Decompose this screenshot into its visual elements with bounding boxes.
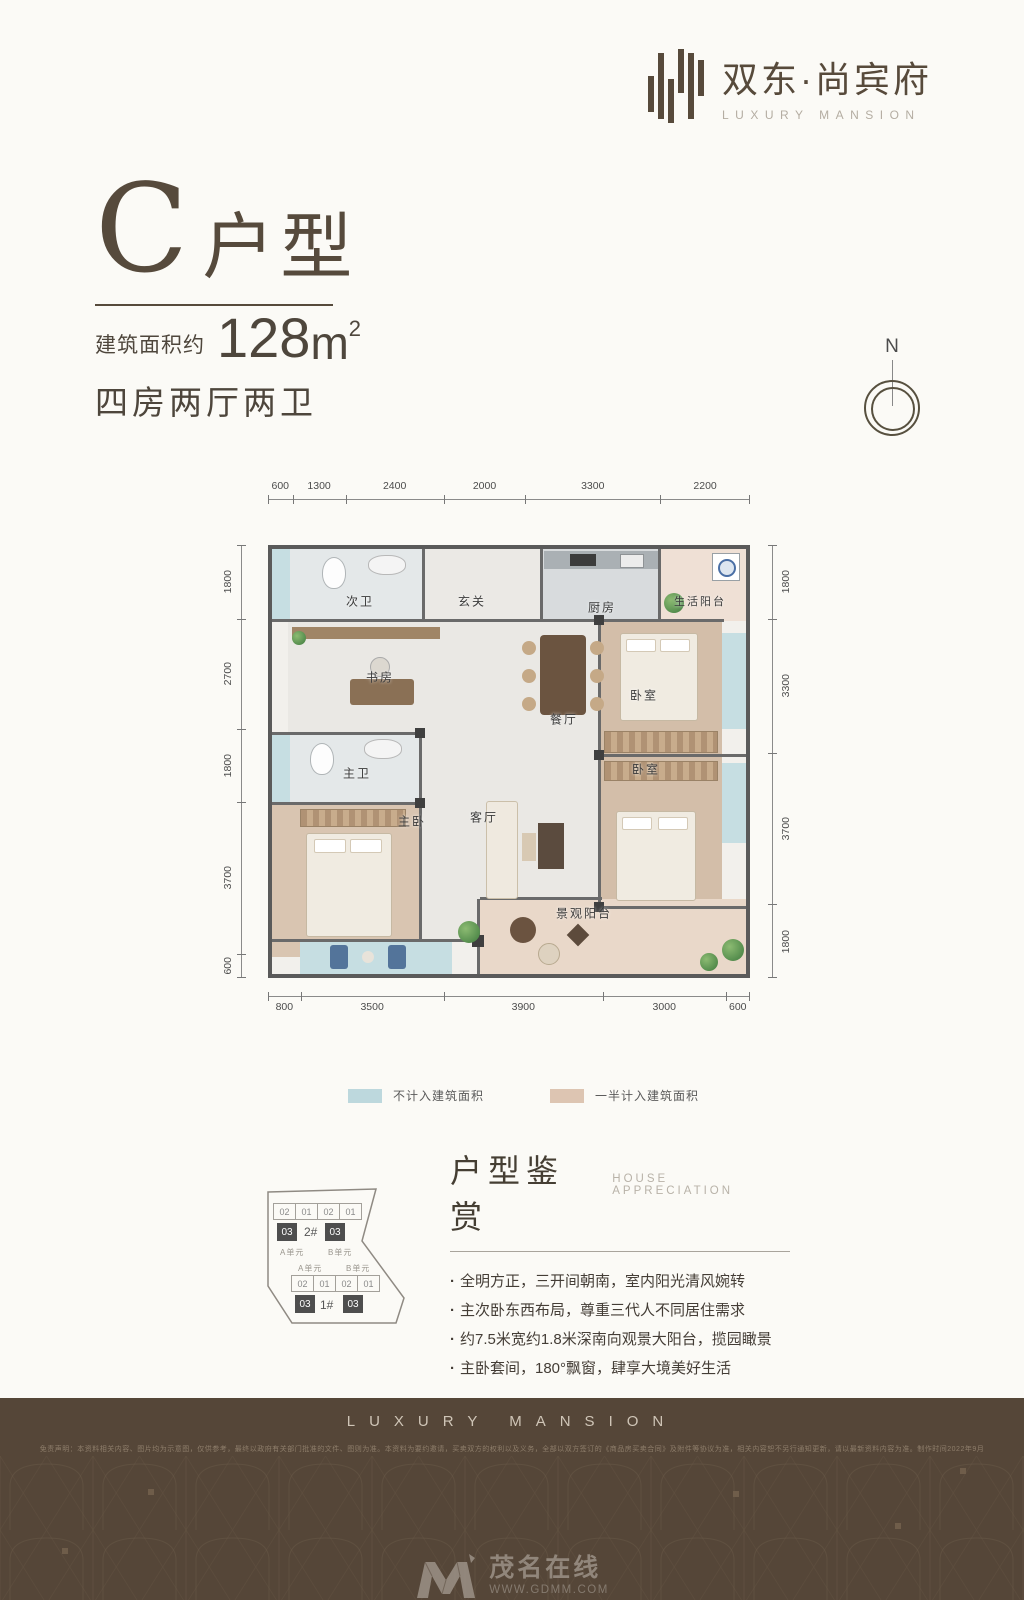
room-label: 卧室 [632, 761, 660, 778]
site-plan-diagram: 02 01 02 01 03 03 2# A单元 B单元 A单元 B单元 02 … [252, 1163, 437, 1335]
building-2: 02 01 02 01 03 03 2# A单元 B单元 [274, 1203, 394, 1263]
room-label: 玄关 [458, 593, 486, 610]
unit-title-block: C 户型 建筑面积约 128 m 2 四房两厅两卫 [95, 168, 361, 424]
plant-icon [700, 953, 718, 971]
watermark-name: 茂名在线 [489, 1556, 609, 1581]
furniture-wardrobe [604, 761, 718, 781]
dim-segment: 1800 [772, 904, 792, 978]
rooms-label: 四房两厅两卫 [95, 376, 361, 424]
watermark: 茂名在线 WWW.GDMM.COM [0, 1552, 1024, 1600]
unit-a-label: A单元 [280, 1247, 304, 1258]
unit-cell: 02 [273, 1203, 296, 1220]
room-label: 书房 [366, 669, 394, 686]
furniture-lounger [388, 945, 406, 969]
bullet-item: 主次卧东西布局，尊重三代人不同居住需求 [450, 1296, 790, 1325]
room-label: 餐厅 [550, 711, 578, 728]
area-label: 建筑面积约 [95, 329, 205, 366]
dim-segment: 600 [222, 954, 242, 979]
building-1: A单元 B单元 02 01 02 01 03 03 1# [292, 1263, 412, 1323]
room-label: 景观阳台 [556, 905, 612, 922]
furniture-shelf [292, 627, 440, 639]
unit-a-label: A单元 [298, 1263, 322, 1274]
room-label: 客厅 [470, 809, 498, 826]
plant-icon [292, 631, 306, 645]
dim-segment: 3700 [222, 802, 242, 953]
house-appreciation-section: 户型鉴赏 HOUSE APPRECIATION 全明方正，三开间朝南，室内阳光清… [450, 1146, 790, 1383]
stove-icon [570, 554, 596, 566]
appreciation-title-cn: 户型鉴赏 [450, 1146, 598, 1238]
balcony-bay-zone [300, 941, 452, 974]
washer-drum-icon [718, 559, 736, 577]
legend-item: 不计入建筑面积 [348, 1087, 484, 1104]
watermark-url: WWW.GDMM.COM [489, 1584, 609, 1596]
area-superscript: 2 [349, 316, 361, 342]
room-label: 生活阳台 [674, 593, 726, 609]
legend-label: 不计入建筑面积 [393, 1087, 484, 1104]
highlighted-unit-03: 03 [325, 1223, 345, 1241]
dim-segment: 3300 [772, 619, 792, 754]
legend: 不计入建筑面积 一半计入建筑面积 [348, 1087, 699, 1104]
furniture-chair [522, 669, 536, 683]
dim-segment: 2000 [444, 480, 526, 500]
room-label: 主卫 [343, 765, 371, 782]
furniture-coffee-table [522, 833, 536, 861]
unit-cell: 02 [335, 1275, 358, 1292]
furniture-round-chair [510, 917, 536, 943]
dim-segment: 600 [268, 480, 293, 500]
furniture-side-table [362, 951, 374, 963]
area-number: 128 [217, 310, 310, 366]
unit-cell: 02 [291, 1275, 314, 1292]
legend-swatch-tan [550, 1089, 584, 1103]
unit-cell: 02 [317, 1203, 340, 1220]
unit-cell: 01 [313, 1275, 336, 1292]
room-foyer [424, 549, 542, 621]
bay-window-zone [722, 633, 746, 729]
room-label: 厨房 [588, 599, 616, 616]
brand-name-cn: 双东·尚宾府 [722, 51, 932, 103]
unit-letter: C [95, 168, 188, 290]
legend-label: 一半计入建筑面积 [595, 1087, 699, 1104]
dim-segment: 600 [726, 996, 751, 1016]
furniture-chair [590, 641, 604, 655]
bullet-item: 约7.5米宽约1.8米深南向观景大阳台，揽园瞰景 [450, 1325, 790, 1354]
footer-disclaimer: 免责声明：本资料相关内容、图片均为示意图，仅供参考，最终以政府有关部门批准的文件… [0, 1444, 1024, 1454]
dim-segment: 3900 [444, 996, 603, 1016]
furniture-chair [522, 697, 536, 711]
dim-segment: 3500 [301, 996, 444, 1016]
brand-name-en: LUXURY MANSION [722, 108, 932, 122]
bay-window-zone [272, 549, 290, 621]
furniture-chair [590, 669, 604, 683]
unit-b-label: B单元 [346, 1263, 370, 1274]
dim-segment: 1800 [772, 545, 792, 619]
bullet-item: 全明方正，三开间朝南，室内阳光清风婉转 [450, 1267, 790, 1296]
footer-brand: LUXURY MANSION [0, 1413, 1024, 1430]
bay-window-zone [272, 735, 290, 805]
sink-icon [364, 739, 402, 759]
dim-segment: 3700 [772, 753, 792, 904]
appreciation-bullets: 全明方正，三开间朝南，室内阳光清风婉转 主次卧东西布局，尊重三代人不同居住需求 … [450, 1267, 790, 1383]
dims-top: 600 1300 2400 2000 3300 2200 [268, 480, 750, 500]
unit-suffix: 户型 [202, 207, 358, 290]
dim-segment: 800 [268, 996, 301, 1016]
poster-page: 双东·尚宾府 LUXURY MANSION C 户型 建筑面积约 128 m 2… [0, 0, 1024, 1600]
brand-logo-icon [648, 44, 704, 128]
compass-north-label: N [856, 336, 928, 358]
north-compass-icon: N [856, 336, 928, 444]
brand-logo: 双东·尚宾府 LUXURY MANSION [648, 44, 932, 128]
dim-segment: 3300 [525, 480, 660, 500]
brand-text: 双东·尚宾府 LUXURY MANSION [722, 51, 932, 122]
dim-segment: 1300 [293, 480, 346, 500]
highlighted-unit-03: 03 [343, 1295, 363, 1313]
sink-icon [368, 555, 406, 575]
dim-segment: 2700 [222, 619, 242, 729]
toilet-icon [310, 743, 334, 775]
highlighted-unit-03: 03 [295, 1295, 315, 1313]
furniture-round-table [538, 943, 560, 965]
dim-segment: 1800 [222, 545, 242, 619]
area-unit: m [310, 320, 348, 366]
furniture-dining-table [540, 635, 586, 715]
dims-right: 1800 3300 3700 1800 [772, 545, 792, 978]
room-label: 次卫 [346, 593, 374, 610]
unit-b-label: B单元 [328, 1247, 352, 1258]
furniture-chair [522, 641, 536, 655]
unit-cell: 01 [339, 1203, 362, 1220]
dims-left: 1800 2700 1800 3700 600 [222, 545, 242, 978]
legend-item: 一半计入建筑面积 [550, 1087, 699, 1104]
room-label: 卧室 [630, 687, 658, 704]
plant-icon [458, 921, 480, 943]
appreciation-title-en: HOUSE APPRECIATION [612, 1173, 790, 1197]
watermark-m-logo [415, 1552, 477, 1600]
dim-segment: 1800 [222, 729, 242, 803]
unit-cell: 01 [295, 1203, 318, 1220]
highlighted-unit-03: 03 [277, 1223, 297, 1241]
toilet-icon [322, 557, 346, 589]
bullet-item: 主卧套间，180°飘窗，肆享大境美好生活 [450, 1354, 790, 1383]
plant-icon [722, 939, 744, 961]
appreciation-header: 户型鉴赏 HOUSE APPRECIATION [450, 1146, 790, 1252]
furniture-chair [590, 697, 604, 711]
furniture-tv-cabinet [538, 823, 564, 869]
watermark-text: 茂名在线 WWW.GDMM.COM [489, 1556, 609, 1596]
building-name: 2# [304, 1225, 317, 1239]
dims-bottom: 800 3500 3900 3000 600 [268, 996, 750, 1016]
furniture-wardrobe [604, 731, 718, 753]
kitchen-sink-icon [620, 554, 644, 568]
building-name: 1# [320, 1298, 333, 1312]
furniture-lounger [330, 945, 348, 969]
room-label: 主卧 [398, 813, 426, 830]
legend-swatch-blue [348, 1089, 382, 1103]
bay-window-zone [722, 763, 746, 843]
dim-segment: 3000 [603, 996, 726, 1016]
footer: LUXURY MANSION 免责声明：本资料相关内容、图片均为示意图，仅供参考… [0, 1398, 1024, 1600]
unit-cell: 01 [357, 1275, 380, 1292]
dim-segment: 2400 [346, 480, 444, 500]
dim-segment: 2200 [660, 480, 750, 500]
furniture-wardrobe [300, 809, 406, 827]
floorplan: 次卫 玄关 厨房 生活阳台 书房 餐厅 卧室 主卫 主卧 客厅 卧室 景观阳台 [268, 545, 750, 978]
